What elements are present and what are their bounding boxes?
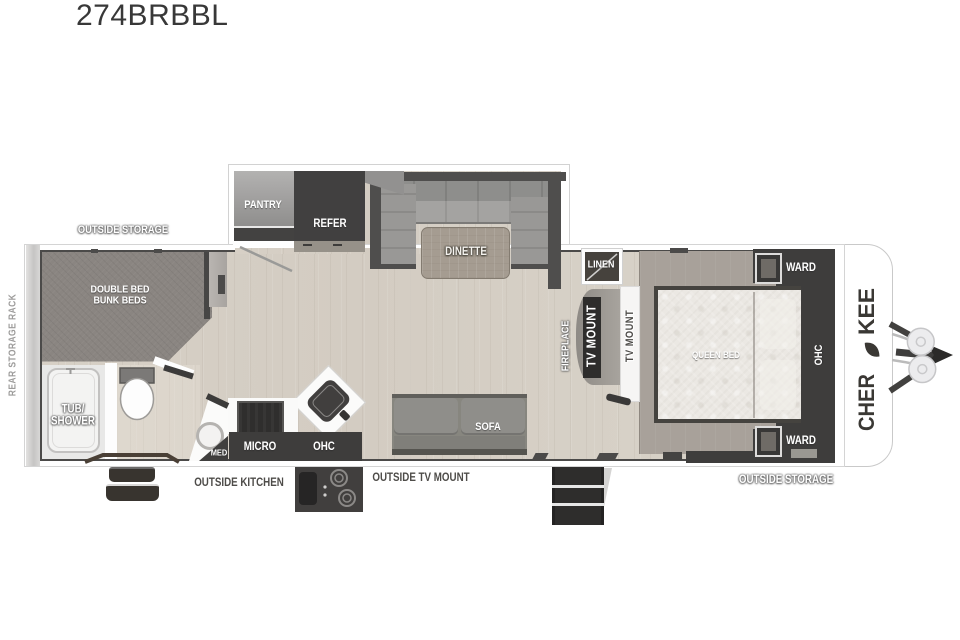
svg-text:CHER: CHER <box>854 374 879 431</box>
svg-text:KEE: KEE <box>854 288 879 335</box>
